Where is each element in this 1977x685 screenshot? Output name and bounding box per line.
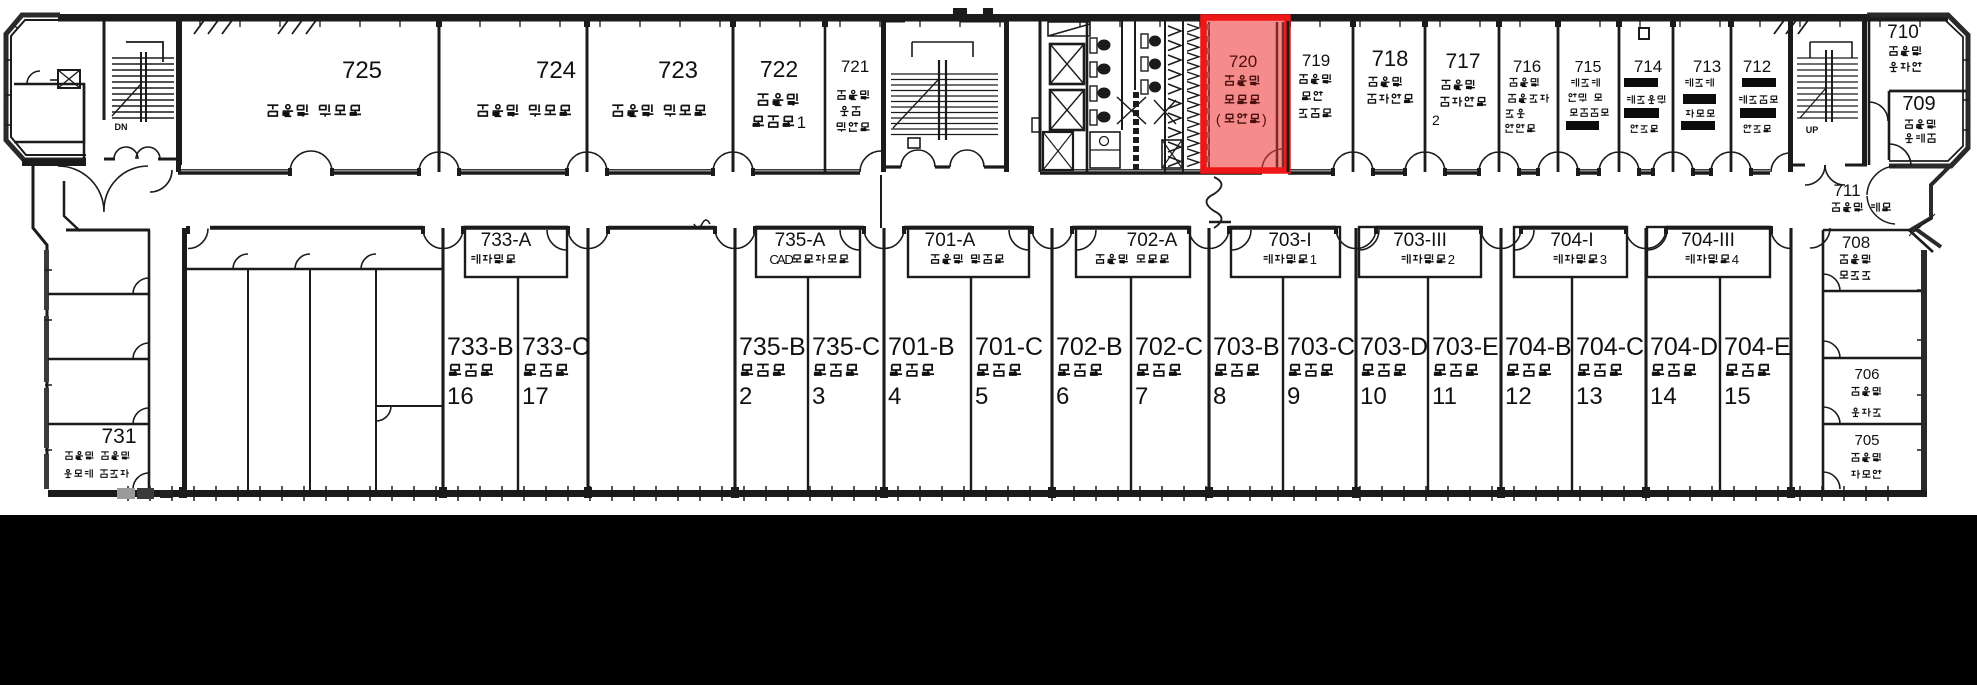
svg-text:703-D: 703-D (1360, 333, 1428, 361)
svg-text:704-III: 704-III (1681, 230, 1735, 251)
svg-text:702-A: 702-A (1127, 230, 1178, 251)
svg-text:705: 705 (1854, 432, 1879, 449)
svg-text:UP: UP (1806, 125, 1819, 135)
svg-text:): ) (1262, 112, 1267, 128)
svg-text:718: 718 (1372, 46, 1409, 71)
svg-text:724: 724 (536, 57, 576, 84)
svg-text:1: 1 (797, 113, 806, 132)
svg-text:704-E: 704-E (1724, 333, 1791, 361)
svg-text:702-B: 702-B (1056, 333, 1123, 361)
svg-text:5: 5 (975, 383, 988, 410)
svg-text:704-I: 704-I (1550, 230, 1593, 251)
svg-text:708: 708 (1842, 233, 1870, 252)
svg-text:10: 10 (1360, 383, 1387, 410)
svg-text:702-C: 702-C (1135, 333, 1203, 361)
svg-text:706: 706 (1854, 366, 1879, 383)
svg-text:714: 714 (1634, 57, 1662, 76)
svg-text:735-C: 735-C (812, 333, 880, 361)
svg-text:703-C: 703-C (1287, 333, 1355, 361)
svg-text:733-B: 733-B (447, 333, 514, 361)
svg-text:721: 721 (841, 57, 869, 76)
svg-text:16: 16 (447, 383, 474, 410)
svg-text:715: 715 (1575, 59, 1602, 76)
svg-text:735-A: 735-A (775, 230, 826, 251)
svg-text:3: 3 (812, 383, 825, 410)
svg-text:17: 17 (522, 383, 549, 410)
svg-text:4: 4 (888, 383, 901, 410)
svg-text:733-A: 733-A (481, 230, 532, 251)
svg-text:(: ( (1216, 112, 1221, 128)
svg-text:733-C: 733-C (522, 333, 590, 361)
svg-text:2: 2 (1448, 252, 1455, 267)
svg-text:14: 14 (1650, 383, 1677, 410)
svg-text:711: 711 (1833, 181, 1860, 200)
svg-text:2: 2 (1432, 112, 1440, 128)
svg-text:15: 15 (1724, 383, 1751, 410)
svg-text:DN: DN (115, 122, 128, 132)
svg-text:6: 6 (1056, 383, 1069, 410)
svg-text:9: 9 (1287, 383, 1300, 410)
svg-text:701-C: 701-C (975, 333, 1043, 361)
svg-text:710: 710 (1887, 22, 1919, 43)
svg-text:725: 725 (342, 57, 382, 84)
svg-text:704-B: 704-B (1505, 333, 1572, 361)
svg-text:13: 13 (1576, 383, 1603, 410)
svg-text:720: 720 (1229, 52, 1257, 71)
svg-text:8: 8 (1213, 383, 1226, 410)
svg-text:7: 7 (1135, 383, 1148, 410)
svg-text:717: 717 (1445, 50, 1480, 73)
svg-text:723: 723 (658, 57, 698, 84)
svg-text:719: 719 (1302, 51, 1330, 70)
svg-text:12: 12 (1505, 383, 1532, 410)
svg-text:703-B: 703-B (1213, 333, 1280, 361)
svg-text:716: 716 (1513, 57, 1541, 76)
svg-text:703-I: 703-I (1268, 230, 1311, 251)
svg-text:701-B: 701-B (888, 333, 955, 361)
svg-text:D: D (784, 252, 793, 267)
svg-text:704-C: 704-C (1576, 333, 1644, 361)
svg-text:3: 3 (1600, 252, 1607, 267)
svg-text:2: 2 (739, 383, 752, 410)
svg-text:4: 4 (1732, 252, 1739, 267)
svg-text:704-D: 704-D (1650, 333, 1718, 361)
svg-text:703-III: 703-III (1393, 230, 1447, 251)
svg-text:712: 712 (1743, 57, 1771, 76)
svg-text:701-A: 701-A (925, 230, 976, 251)
svg-text:731: 731 (101, 425, 136, 448)
svg-text:713: 713 (1693, 57, 1721, 76)
svg-text:1: 1 (1310, 252, 1317, 267)
svg-text:735-B: 735-B (739, 333, 806, 361)
svg-text:703-E: 703-E (1432, 333, 1499, 361)
svg-text:709: 709 (1902, 93, 1935, 115)
svg-text:722: 722 (760, 56, 798, 82)
svg-text:11: 11 (1432, 383, 1457, 410)
